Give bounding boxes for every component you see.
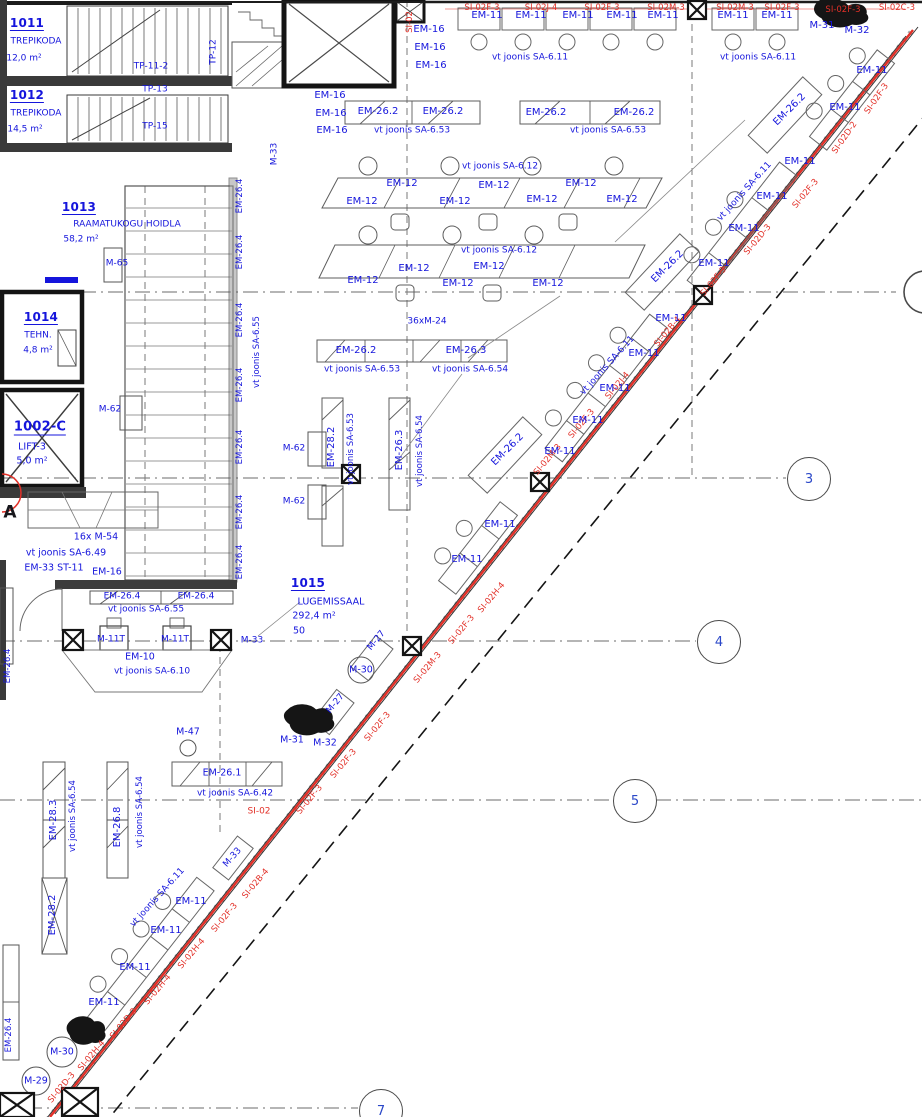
grid-bubble-number: 4 — [715, 635, 723, 650]
scribble-marks — [67, 0, 868, 1044]
grid-bubble-4: 4 — [697, 620, 741, 664]
grid-bubble-number: 3 — [805, 472, 813, 487]
floor-plan: 1011TREPIKODA12,0 m²TP-11-2TP-12TP-13101… — [0, 0, 922, 1117]
grid-bubble-number: 5 — [631, 794, 639, 809]
grid-bubble-3: 3 — [787, 457, 831, 501]
facade-red-line — [43, 27, 918, 1117]
facade-desk-chains — [22, 38, 895, 1095]
shelving-1013 — [104, 178, 326, 582]
stairwells — [0, 0, 286, 152]
floor-plan-linework — [0, 0, 922, 1117]
grid-bubble-number: 7 — [377, 1104, 385, 1117]
grid-bubble-5: 5 — [613, 779, 657, 823]
grid-bubble-partial — [904, 271, 922, 313]
em12-desk-rows — [319, 120, 745, 301]
elevator-shaft — [228, 1, 430, 86]
